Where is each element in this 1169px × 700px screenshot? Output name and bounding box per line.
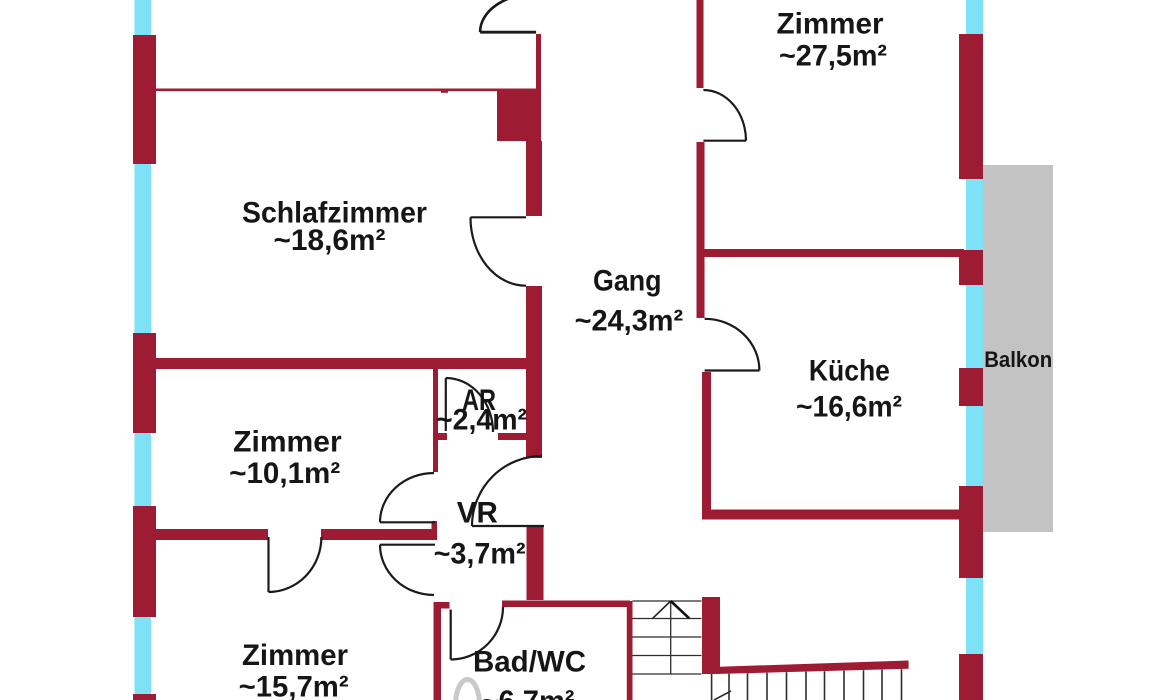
svg-text:Zimmer: Zimmer (777, 7, 884, 40)
svg-text:VR: VR (457, 497, 498, 530)
svg-text:~3,7m²: ~3,7m² (434, 537, 526, 570)
svg-text:Bad/WC: Bad/WC (473, 646, 586, 679)
svg-text:~6,7m²: ~6,7m² (482, 685, 575, 700)
svg-text:~27,5m²: ~27,5m² (779, 40, 887, 73)
svg-text:~2,4m²: ~2,4m² (436, 404, 527, 437)
svg-text:~18,6m²: ~18,6m² (274, 224, 386, 257)
svg-text:Zimmer: Zimmer (233, 425, 342, 458)
svg-text:~16,6m²: ~16,6m² (796, 390, 902, 423)
svg-text:~24,3m²: ~24,3m² (575, 305, 684, 338)
svg-text:Küche: Küche (809, 354, 890, 387)
svg-text:Zimmer: Zimmer (242, 639, 348, 672)
svg-text:Balkon: Balkon (984, 347, 1052, 372)
svg-text:~10,1m²: ~10,1m² (229, 457, 340, 490)
svg-text:~15,7m²: ~15,7m² (239, 671, 349, 700)
svg-text:Gang: Gang (593, 264, 662, 297)
